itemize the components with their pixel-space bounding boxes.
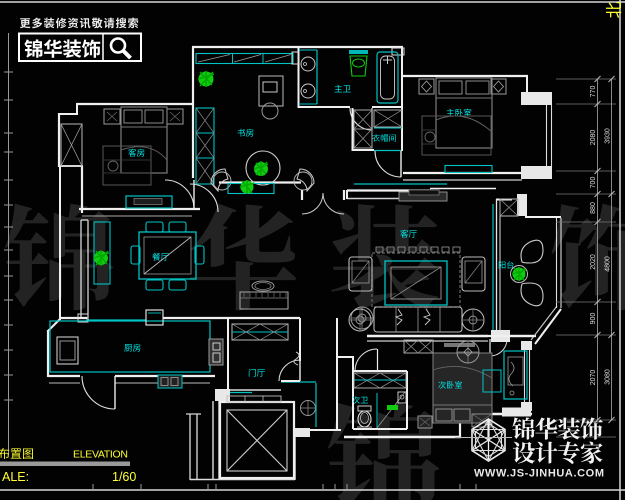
svg-text:700: 700 [590, 177, 597, 189]
svg-text:2020: 2020 [590, 254, 597, 270]
svg-text:900: 900 [590, 313, 597, 325]
svg-text:ALE:: ALE: [2, 470, 29, 484]
svg-text:880: 880 [590, 202, 597, 214]
svg-text:3080: 3080 [605, 369, 612, 385]
svg-text:4800: 4800 [605, 256, 612, 272]
svg-text:770: 770 [590, 86, 597, 98]
svg-text:2070: 2070 [590, 370, 597, 386]
svg-text:1/60: 1/60 [112, 470, 136, 484]
svg-text:3930: 3930 [605, 128, 612, 144]
svg-text:WWW.JS-JINHUA.COM: WWW.JS-JINHUA.COM [474, 468, 605, 480]
svg-text:ELEVATION: ELEVATION [73, 449, 128, 461]
svg-text:2080: 2080 [590, 130, 597, 146]
